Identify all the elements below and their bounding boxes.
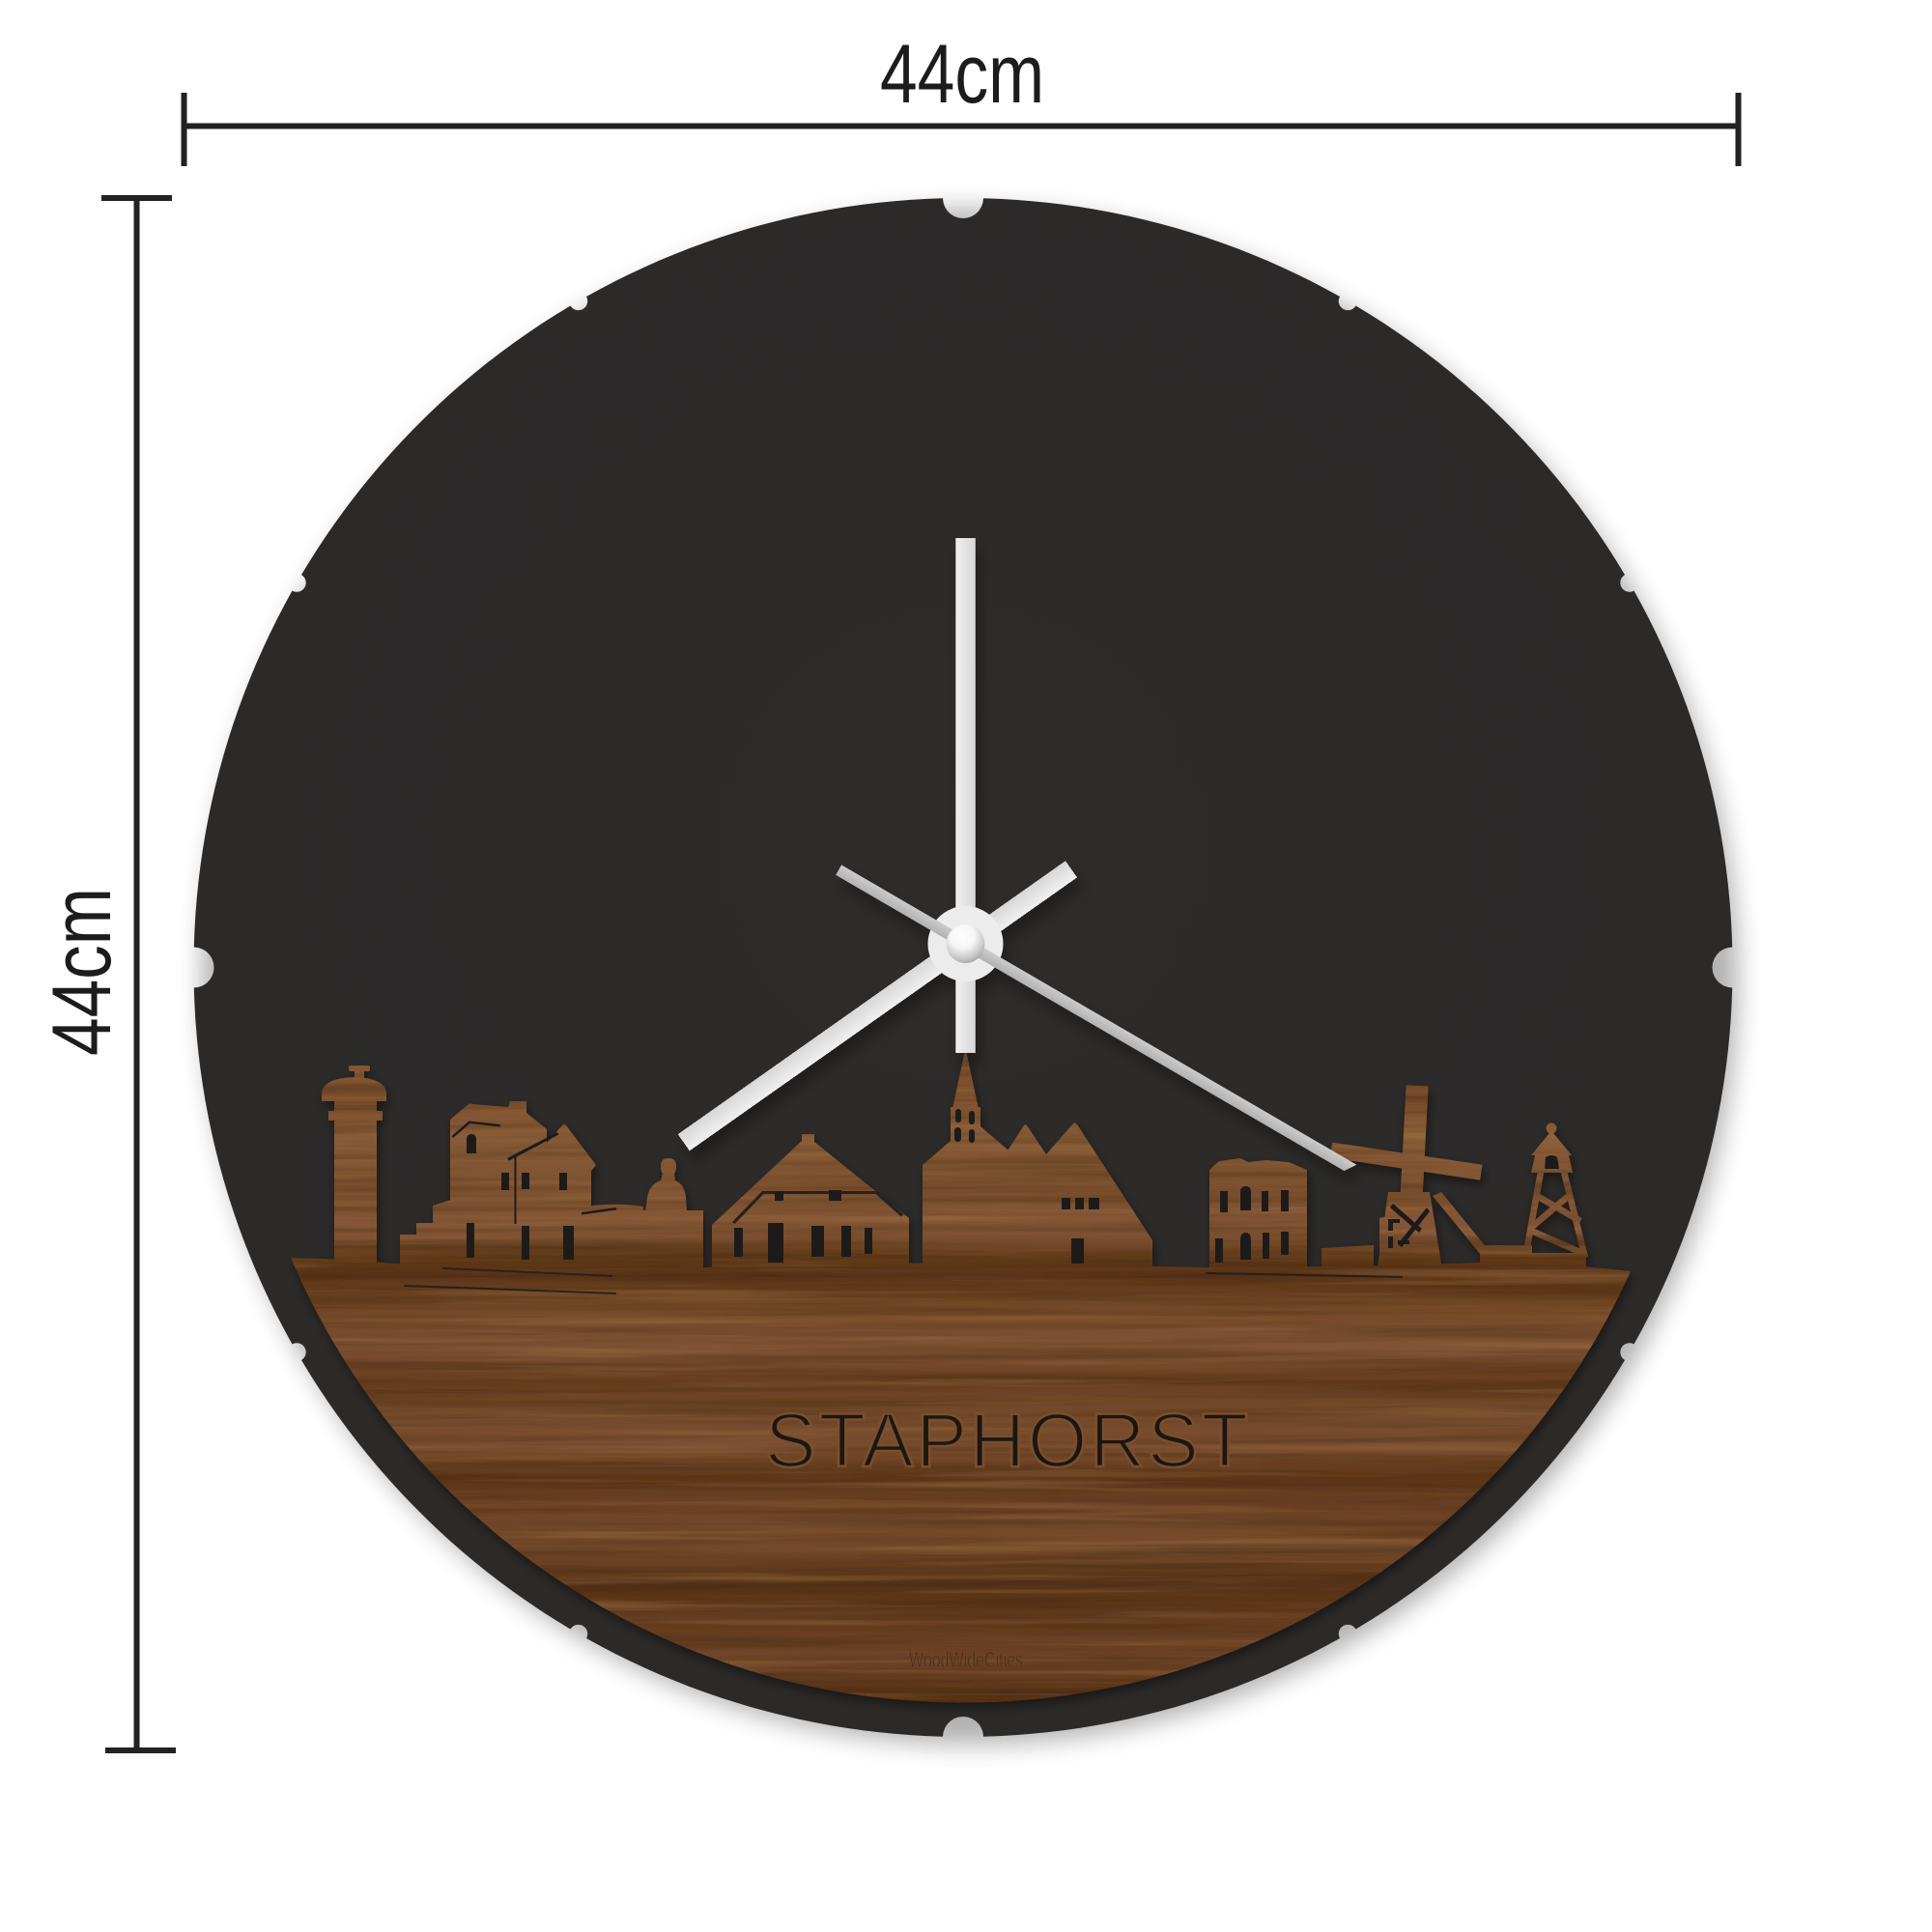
svg-text:44cm: 44cm [880,28,1044,121]
svg-text:44cm: 44cm [36,888,128,1056]
svg-text:WoodWideCities: WoodWideCities [909,1647,1023,1672]
svg-text:STAPHORST: STAPHORST [765,1397,1248,1483]
